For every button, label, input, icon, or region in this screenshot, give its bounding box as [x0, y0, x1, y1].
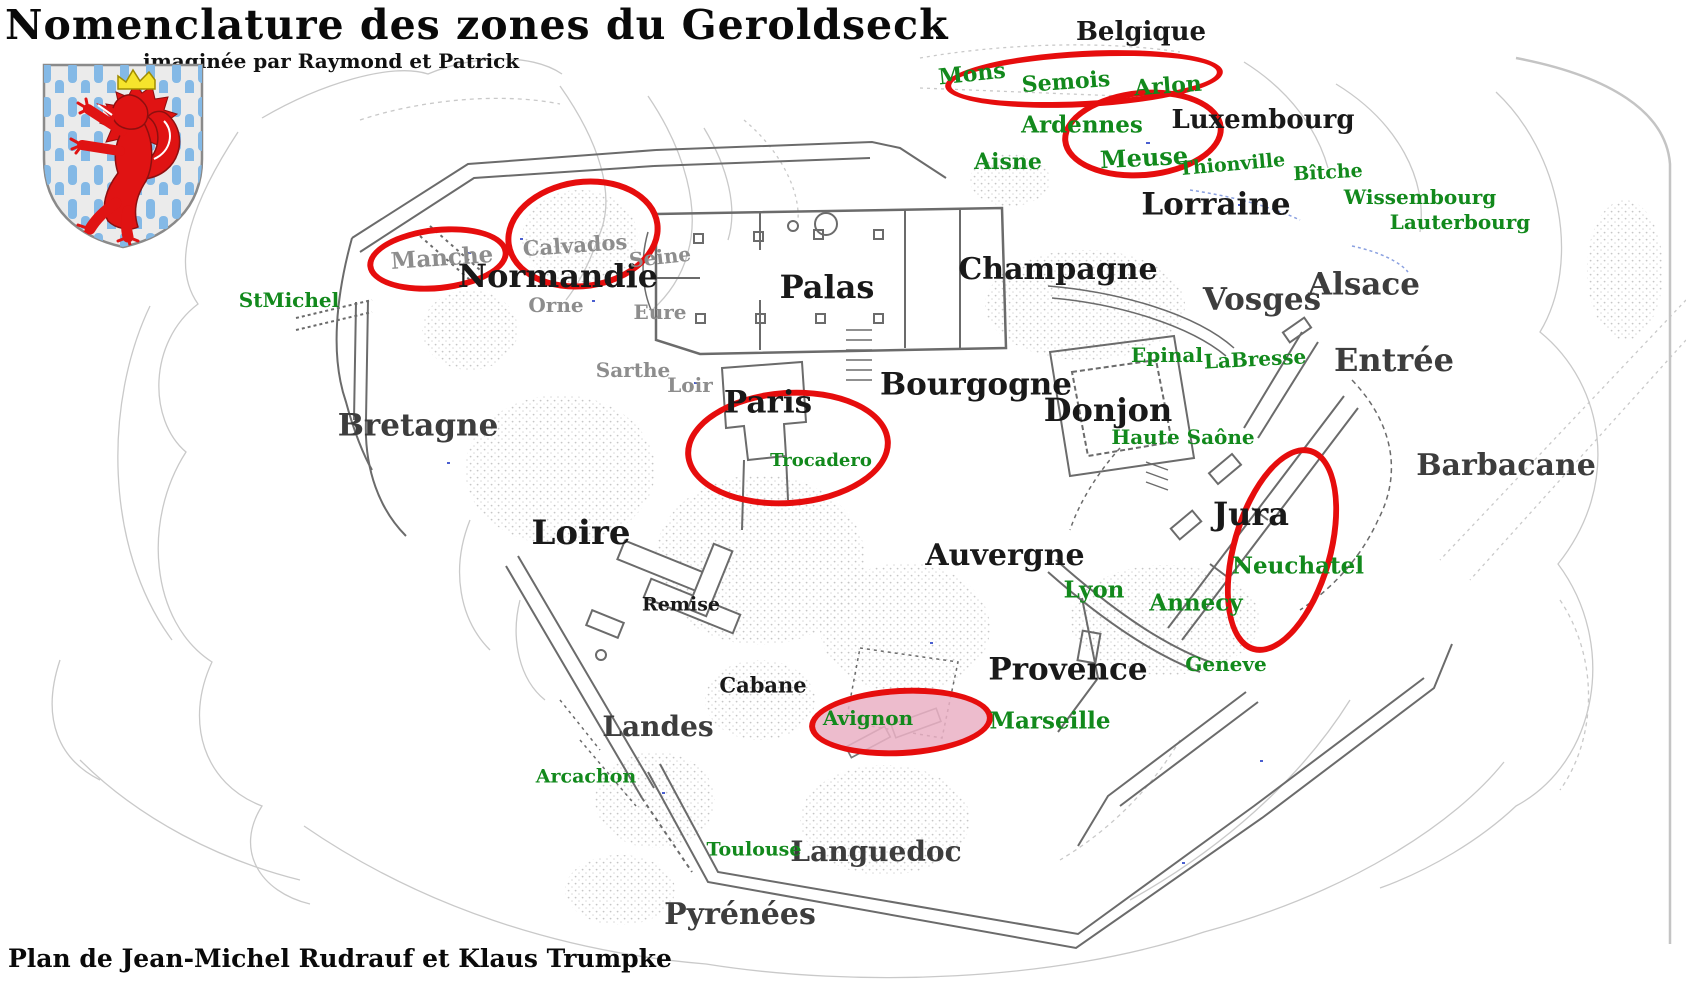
coat-of-arms — [38, 59, 208, 251]
label-loire: Loire — [531, 516, 630, 550]
label-lauterbourg: Lauterbourg — [1390, 212, 1530, 232]
label-remise: Remise — [642, 596, 720, 615]
label-manche: Manche — [390, 243, 494, 273]
label-ardennes: Ardennes — [1021, 114, 1143, 137]
label-cabane: Cabane — [719, 675, 806, 696]
label-loir: Loir — [667, 375, 713, 395]
label-orne: Orne — [528, 295, 583, 315]
label-labresse: LaBresse — [1203, 346, 1306, 371]
label-barbacane: Barbacane — [1416, 451, 1596, 481]
label-neuchatel: Neuchatel — [1232, 555, 1364, 578]
label-calvados: Calvados — [522, 231, 628, 259]
label-arcachon: Arcachon — [536, 768, 637, 787]
label-seine: Seine — [628, 244, 692, 270]
label-arlon: Arlon — [1133, 73, 1202, 100]
label-haute-saone: Haute Saône — [1111, 427, 1254, 447]
label-stmichel: StMichel — [239, 290, 339, 310]
label-marseille: Marseille — [990, 710, 1111, 733]
label-trocadero: Trocadero — [770, 452, 872, 470]
label-layer: BelgiqueLuxembourgLorraineNormandiePalas… — [0, 0, 1686, 996]
label-alsace: Alsace — [1308, 270, 1420, 301]
label-avignon: Avignon — [823, 708, 913, 728]
label-aisne: Aisne — [974, 151, 1042, 173]
map-credit: Plan de Jean-Michel Rudrauf et Klaus Tru… — [8, 944, 672, 973]
label-vosges: Vosges — [1203, 285, 1321, 316]
label-donjon: Donjon — [1044, 394, 1173, 426]
label-luxembourg: Luxembourg — [1171, 107, 1354, 133]
label-thionville: Thionville — [1178, 151, 1286, 179]
label-meuse: Meuse — [1099, 144, 1188, 173]
label-champagne: Champagne — [958, 255, 1157, 285]
page-title: Nomenclature des zones du Geroldseck — [5, 4, 949, 47]
label-eure: Eure — [633, 302, 686, 322]
label-palas: Palas — [780, 271, 875, 303]
label-languedoc: Languedoc — [790, 838, 961, 866]
label-geneve: Geneve — [1185, 654, 1266, 674]
label-jura: Jura — [1213, 498, 1289, 530]
label-semois: Semois — [1021, 68, 1111, 96]
label-annecy: Annecy — [1149, 592, 1242, 615]
label-lorraine: Lorraine — [1141, 190, 1290, 221]
label-epinal: Epinal — [1131, 345, 1203, 365]
label-entree: Entrée — [1334, 344, 1454, 376]
label-provence: Provence — [988, 655, 1147, 686]
label-toulouse: Toulouse — [707, 841, 802, 860]
label-auvergne: Auvergne — [925, 541, 1084, 571]
title-block: Nomenclature des zones du Geroldseck — [5, 4, 949, 47]
label-pyrenees: Pyrénées — [664, 900, 816, 930]
label-mons: Mons — [937, 60, 1006, 89]
geroldseck-map: BelgiqueLuxembourgLorraineNormandiePalas… — [0, 0, 1686, 996]
label-landes: Landes — [602, 713, 713, 741]
label-paris: Paris — [724, 388, 812, 419]
label-sarthe: Sarthe — [596, 360, 670, 380]
label-bretagne: Bretagne — [338, 411, 499, 442]
label-lyon: Lyon — [1064, 579, 1125, 602]
label-belgique: Belgique — [1076, 19, 1206, 45]
label-bitche: Bîtche — [1293, 162, 1363, 185]
label-wissembourg: Wissembourg — [1344, 187, 1497, 207]
